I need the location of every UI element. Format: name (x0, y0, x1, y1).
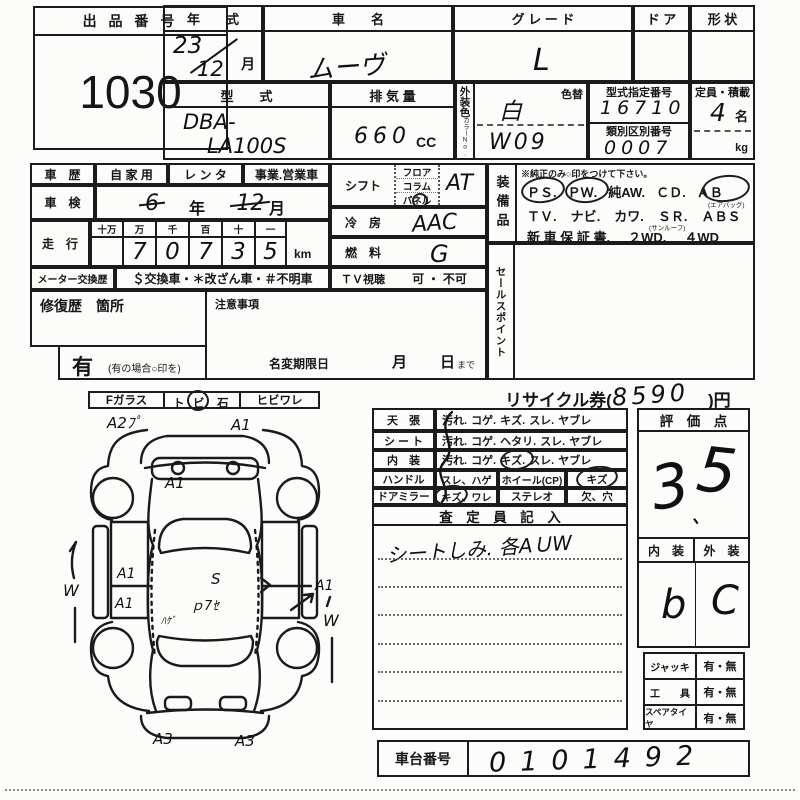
headliner-tear: ヤブレ (558, 412, 591, 428)
right-tick-mark (327, 597, 330, 606)
grade-label: グ レ ー ド (455, 7, 631, 32)
fuel-hw: G (430, 240, 449, 268)
mileage-col-10: 十 (223, 222, 254, 238)
grade-cell: グ レ ー ド L (453, 5, 633, 82)
tv-label: ＴＶ視聴 (332, 269, 394, 288)
interior-burn: コゲ. (471, 452, 496, 468)
assessor-note-hw: シートしみ. 各AＵW (385, 527, 573, 569)
model-code-hw2: LA100S (207, 134, 286, 158)
repair-has-box: 有 (有の場合○印を) (58, 345, 207, 380)
capacity-divider (694, 130, 751, 132)
equipment-leather: カワ. (614, 206, 644, 225)
seat-options: 汚れ. コゲ. ヘタリ. スレ. ヤブレ (435, 431, 628, 450)
damage-code-left-side: W (63, 581, 80, 600)
model-code-hw1: DBA- (183, 110, 236, 134)
damage-code-rear-right: A3 (234, 732, 255, 750)
fglass-bar: Fガラス ト ビ 石 ヒビワレ (88, 391, 320, 409)
seat-burn: コゲ. (471, 433, 496, 449)
mileage-label: 走 行 (30, 220, 90, 267)
chassis-box: 車台番号 0101492 (377, 740, 750, 777)
shaken-year-hw: 6 (145, 191, 159, 216)
year-label: 年 式 (165, 7, 261, 32)
shift-hw: AT (446, 171, 473, 196)
name-change-day-label: 日 (440, 351, 455, 372)
damage-code-hood: A1 (164, 474, 185, 492)
mileage-digit-2: 0 (157, 238, 188, 265)
interior-label: 内 装 (374, 452, 433, 468)
mileage-unit: km (294, 247, 311, 261)
door-opening-dashed-left (152, 530, 156, 657)
shift-option-column: コラム (396, 179, 438, 193)
repair-has-note: (有の場合○印を) (108, 360, 181, 375)
damage-code-right-side: W (323, 611, 340, 630)
wheel-front-left (93, 478, 133, 518)
damage-code-roof-2: ｐ7ｾ (191, 599, 220, 614)
damage-code-rear-left: A3 (152, 730, 173, 748)
exterior-grade-label: 外 装 (695, 539, 748, 561)
repair-has-label: 有 (72, 351, 93, 381)
damage-code-front-left: A2ﾌﾟ (106, 414, 142, 432)
shaken-year-unit: 年 (189, 195, 205, 219)
damage-code-left-door-2: A1 (114, 596, 133, 612)
model-code-label: 型 式 (165, 84, 328, 108)
year-cell: 年 式 23 12 月 (163, 5, 263, 82)
type-designation-hw: 16710 (600, 97, 685, 119)
assessor-rule-1 (378, 558, 622, 560)
mileage-col-100: 百 (190, 222, 221, 238)
year-value-hw: 23 (173, 33, 202, 59)
jack-label: ジャッキ (645, 654, 697, 678)
meter-history-label: メーター交換歴 (30, 267, 115, 290)
recycle-amount-hw: 8590 (611, 378, 690, 411)
repair-history-box: 修復歴 箇所 (30, 290, 207, 347)
mileage-grid: 十万 万 7 千 0 百 7 十 3 一 5 km (90, 220, 330, 267)
ac-cell: 冷 房 AAC (330, 207, 487, 237)
assessor-rule-5 (378, 671, 622, 673)
stone-chip-to: ト (173, 395, 185, 411)
month-unit: 月 (241, 54, 255, 74)
fglass-label: Fガラス (90, 393, 165, 407)
history-option-private: 自 家 用 (95, 163, 168, 185)
damage-code-left-door-1: A1 (116, 566, 135, 582)
fuel-cell: 燃 料 G (330, 237, 487, 267)
history-option-business: 事業.営業車 (243, 163, 330, 185)
weight-unit: kg (735, 142, 748, 154)
jack-value: 有・無 (697, 654, 743, 678)
seat-wear: スレ. (540, 433, 565, 449)
type-designation-cell: 型式指定番号 16710 類別区別番号 0007 (588, 82, 690, 160)
wheel-label: ホイール(CP) (498, 470, 566, 488)
seat-label: シ ー ト (374, 433, 433, 448)
meter-history-options: ＄交換車・＊改ざん車・＃不明車 (115, 267, 330, 290)
equipment-tv: ＴＶ. (527, 206, 557, 225)
car-damage-diagram: A2ﾌﾟ A1 A1 A1 A1 W S ｐ7ｾ ﾊｹﾞ A1 W A3 A3 (55, 410, 365, 770)
headliner-options: 汚れ. コゲ. キズ. スレ. ヤブレ (435, 408, 628, 431)
mileage-digit-1: 7 (124, 238, 155, 265)
shift-cell: シフト フロア コラム パネル AT (330, 163, 487, 207)
assessor-rule-6 (378, 700, 622, 702)
rear-glass (157, 636, 253, 666)
name-change-label: 名変期限日 (269, 355, 329, 372)
door-opening-dashed-right (255, 530, 259, 657)
sales-point-label: セールスポイント (494, 266, 509, 358)
ac-hw: AAC (411, 209, 458, 237)
right-rocker-strip (302, 526, 317, 618)
rear-light-left (165, 697, 191, 710)
rear-bumper-inner-line (147, 710, 263, 714)
crack-label: ヒビワレ (241, 393, 318, 407)
score-header: 評 価 点 (639, 410, 748, 432)
equipment-aw: 純AW. (608, 182, 645, 201)
class-number-label: 類別区別番号 (590, 124, 688, 138)
mileage-col-1k: 千 (157, 222, 188, 238)
equipment-label: 装備品 (493, 175, 512, 232)
exterior-color-label-col: 外装色 カラーNo. (457, 84, 475, 158)
door-cell: ド ア (633, 5, 690, 82)
grade-column-divider (695, 563, 696, 646)
model-code-cell: 型 式 DBA- LA100S (163, 82, 330, 160)
displacement-cell: 排 気 量 660 CC (330, 82, 455, 160)
color-no-label: カラーNo. (461, 117, 468, 158)
shaken-label: 車 検 (30, 185, 95, 220)
color-hw: 白 (499, 92, 522, 126)
equipment-navi: ナビ. (571, 206, 601, 225)
color-code-hw: W09 (489, 130, 548, 155)
sales-point-box: セールスポイント (487, 243, 755, 380)
car-name-cell: 車 名 ムーヴ (263, 5, 453, 82)
right-door-panel (262, 522, 299, 618)
headliner-wear: スレ. (529, 412, 554, 428)
equipment-cd: ＣＤ. (656, 182, 686, 201)
exterior-color-label: 外装色 (459, 86, 470, 118)
score-digit2-hw: 5 (693, 432, 740, 509)
stone-chip-ishi: 石 (217, 395, 229, 411)
color-cell-divider (477, 124, 584, 126)
interior-tear: ヤブレ (558, 452, 591, 468)
notes-box: 注意事項 名変期限日 月 日 まで (205, 290, 487, 380)
score-box: 評 価 点 3 、 5 内 装 外 装 b C (637, 408, 750, 648)
equipment-box: 装備品 ※純正のみ○印をつけて下さい。 ＰＳ. ＰＷ. 純AW. ＣＤ. ＡＢ … (487, 163, 755, 243)
name-change-month-label: 月 (392, 351, 407, 372)
grade-hw: L (533, 43, 550, 78)
wheel-front-right (277, 478, 317, 518)
mileage-col-1: 一 (256, 222, 285, 238)
capacity-unit: 名 (735, 106, 748, 125)
mileage-digit-0 (92, 238, 122, 265)
assessor-rule-2 (378, 586, 622, 588)
mileage-digit-3: 7 (190, 238, 221, 265)
interior-grade-label: 内 装 (639, 539, 695, 561)
tools-value: 有・無 (697, 680, 743, 704)
rear-light-right (220, 697, 246, 710)
shape-cell: 形 状 (690, 5, 755, 82)
shaken-month-hw: 12 (236, 191, 264, 216)
shift-label: シフト (332, 165, 394, 205)
notes-label: 注意事項 (215, 296, 259, 312)
assessor-header: 査 定 員 記 入 (374, 507, 626, 526)
assessor-rule-3 (378, 614, 622, 616)
auction-sheet: 出 品 番 号 1030 年 式 23 12 月 車 名 ムーヴ グ レ ー ド… (0, 0, 800, 800)
score-digit1-hw: 3 (645, 449, 695, 525)
windshield (159, 519, 251, 553)
wheel-rear-right (277, 628, 317, 668)
door-label: ド ア (635, 7, 688, 32)
damage-code-right-door: A1 (314, 578, 333, 594)
equipment-abs: ＡＢＳ (702, 206, 741, 225)
seat-sag: ヘタリ. (500, 433, 536, 449)
handle-label: ハンドル (372, 470, 435, 488)
interior-label-cell: 内 装 (372, 450, 435, 470)
displacement-unit: CC (416, 134, 436, 150)
car-name-hw: ムーヴ (306, 44, 386, 86)
capacity-cell: 定員・積載 4 名 kg (690, 82, 755, 160)
tv-options: 可 ・ 不可 (394, 269, 485, 288)
class-number-hw: 0007 (604, 137, 672, 159)
accessories-box: ジャッキ 有・無 工 具 有・無 スペアタイヤ 有・無 (643, 652, 745, 730)
stereo-value: 欠、穴 (566, 488, 628, 505)
headliner-burn: コゲ. (471, 412, 496, 428)
capacity-hw: 4 (710, 98, 726, 127)
headliner-scratch: キズ. (500, 412, 525, 428)
car-name-label: 車 名 (265, 7, 451, 32)
color-change-label: 色替 (561, 86, 583, 102)
ac-label: 冷 房 (332, 209, 394, 235)
tv-cell: ＴＶ視聴 可 ・ 不可 (330, 267, 487, 290)
mirror-label: ドアミラー (372, 488, 435, 505)
headliner-label: 天 張 (374, 410, 433, 429)
headliner-label-cell: 天 張 (372, 408, 435, 431)
spare-tire-value: 有・無 (697, 706, 743, 730)
exterior-color-cell: 外装色 カラーNo. 色替 白 W09 (455, 82, 588, 160)
repair-history-label: 修復歴 箇所 (40, 296, 124, 316)
history-option-rental: レ ン タ (168, 163, 243, 185)
interior-grade-hw: b (661, 582, 686, 628)
mileage-col-10k: 万 (124, 222, 155, 238)
assessor-box: 査 定 員 記 入 シートしみ. 各AＵW (372, 505, 628, 730)
left-rocker-strip (93, 526, 108, 618)
damage-code-roof-3: ﾊｹﾞ (161, 615, 176, 627)
mileage-digit-4: 3 (223, 238, 254, 265)
chassis-number-hw: 0101492 (489, 740, 708, 779)
shaken-value-cell: 6 年 12 月 (95, 185, 330, 220)
seat-tear: ヤブレ (569, 433, 602, 449)
front-bumper-inner-line (145, 463, 265, 469)
page-bottom-rule (5, 789, 795, 791)
stereo-label: ステレオ (498, 488, 566, 505)
shift-option-floor: フロア (396, 165, 438, 179)
shape-label: 形 状 (692, 7, 753, 32)
shaken-month-unit: 月 (269, 195, 285, 219)
tools-label: 工 具 (645, 680, 697, 704)
damage-code-front-right: A1 (230, 416, 251, 434)
assessor-rule-4 (378, 643, 622, 645)
mileage-col-100k: 十万 (92, 222, 122, 238)
damage-code-roof-1: S (211, 570, 221, 588)
name-change-made-label: まで (457, 358, 475, 371)
fuel-label: 燃 料 (332, 239, 394, 265)
spare-tire-label: スペアタイヤ (645, 706, 697, 730)
month-value-hw: 12 (197, 57, 224, 81)
left-arrow-stroke (70, 542, 76, 578)
displacement-hw: 660 (354, 124, 411, 149)
exterior-grade-hw: C (711, 578, 739, 624)
wheel-rear-left (93, 628, 133, 668)
displacement-label: 排 気 量 (332, 84, 453, 108)
seat-label-cell: シ ー ト (372, 431, 435, 450)
chassis-label: 車台番号 (379, 742, 469, 775)
history-label: 車 歴 (30, 163, 95, 185)
mileage-digit-5: 5 (256, 238, 285, 265)
